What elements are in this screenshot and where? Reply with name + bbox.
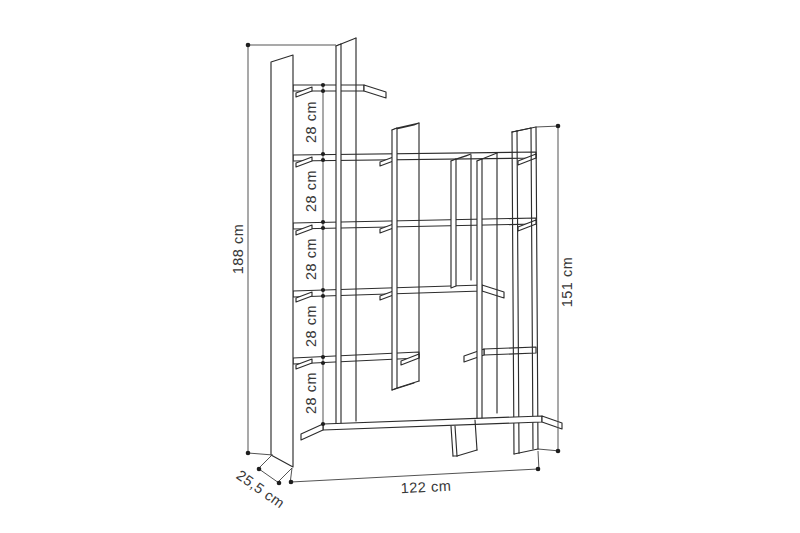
shelf-5-right	[464, 347, 536, 362]
shelf-slab	[484, 347, 536, 355]
panel-bottom-edge	[519, 449, 538, 453]
extension-line	[278, 468, 292, 482]
dimension-dot	[536, 467, 541, 472]
divider-front-strip	[477, 159, 482, 421]
dimension-dot	[246, 43, 251, 48]
shelf-end-cap	[482, 285, 504, 298]
dimension-dot	[321, 158, 325, 162]
dim-total-height-label: 188 cm	[230, 224, 246, 275]
dimension-dot	[257, 467, 262, 472]
dim-shelf-gap-label-4: 28 cm	[303, 305, 319, 347]
dim-total-width-label: 122 cm	[400, 478, 451, 497]
dimension-dot	[321, 89, 325, 93]
dimension-dot	[556, 124, 561, 129]
dimension-dot	[321, 294, 325, 298]
dim-shelf-gap-label-2: 28 cm	[303, 170, 319, 212]
shelf-end-cap	[542, 416, 562, 429]
dim-shelf-gap-label-5: 28 cm	[303, 372, 319, 414]
dimension-dot	[321, 152, 325, 156]
panel-top-edge	[517, 127, 536, 131]
dimension-dot	[321, 288, 325, 292]
divider-front-strip	[336, 44, 341, 426]
shelf-2	[293, 152, 536, 167]
panel-bottom-edge	[514, 453, 519, 454]
dividers	[336, 38, 497, 426]
foot-bottom-edge	[457, 450, 477, 456]
divider-1	[336, 38, 356, 426]
dim-right-height: 151 cm	[536, 124, 575, 454]
dimension-dot	[289, 480, 294, 485]
dim-depth-label: 25,5 cm	[233, 467, 287, 512]
bookshelf-dimension-diagram: 188 cm 151 cm 28 cm 28 cm	[0, 0, 800, 533]
dim-total-width: 122 cm	[289, 451, 541, 496]
shelf-end-cap	[301, 424, 323, 440]
dimension-dot	[246, 451, 251, 456]
shelf-slab	[293, 218, 536, 229]
shelf-slab	[293, 152, 536, 161]
shelves	[293, 85, 536, 369]
panel-face	[271, 55, 293, 467]
dim-shelf-gap-label-1: 28 cm	[303, 101, 319, 143]
divider-2	[392, 123, 419, 390]
dimension-dot	[277, 481, 282, 486]
divider-front-strip	[451, 159, 456, 288]
foot-edge-line	[455, 426, 457, 456]
dimension-dot	[321, 355, 325, 359]
shelf-end-cap	[364, 85, 386, 98]
extension-line	[248, 453, 273, 455]
dim-shelf-spacings: 28 cm 28 cm 28 cm 28 cm 28 cm	[303, 83, 325, 426]
panel-edge-line	[536, 127, 538, 449]
dim-right-height-label: 151 cm	[559, 257, 575, 308]
divider-bottom-cap	[397, 381, 419, 388]
foot-edge-line	[451, 426, 453, 456]
dimension-dot	[321, 220, 325, 224]
dimension-dot	[321, 361, 325, 365]
panel-edge-line	[512, 132, 514, 454]
dimension-dot	[321, 83, 325, 87]
dimension-dot	[321, 226, 325, 230]
shelf-3	[293, 218, 536, 235]
divider-front-strip	[392, 128, 397, 390]
dim-depth: 25,5 cm	[233, 456, 292, 512]
dimension-dot	[321, 422, 325, 426]
shelf-4	[293, 285, 504, 302]
left-side-panel	[271, 55, 293, 467]
panel-top-edge	[512, 131, 517, 132]
panel-edge-line	[531, 128, 533, 449]
dimension-dot	[556, 449, 561, 454]
dim-shelf-gap-label-3: 28 cm	[303, 238, 319, 280]
panel-edge-line	[517, 131, 519, 453]
right-side-panel	[512, 127, 538, 454]
diagram-canvas: 188 cm 151 cm 28 cm 28 cm	[0, 0, 800, 533]
